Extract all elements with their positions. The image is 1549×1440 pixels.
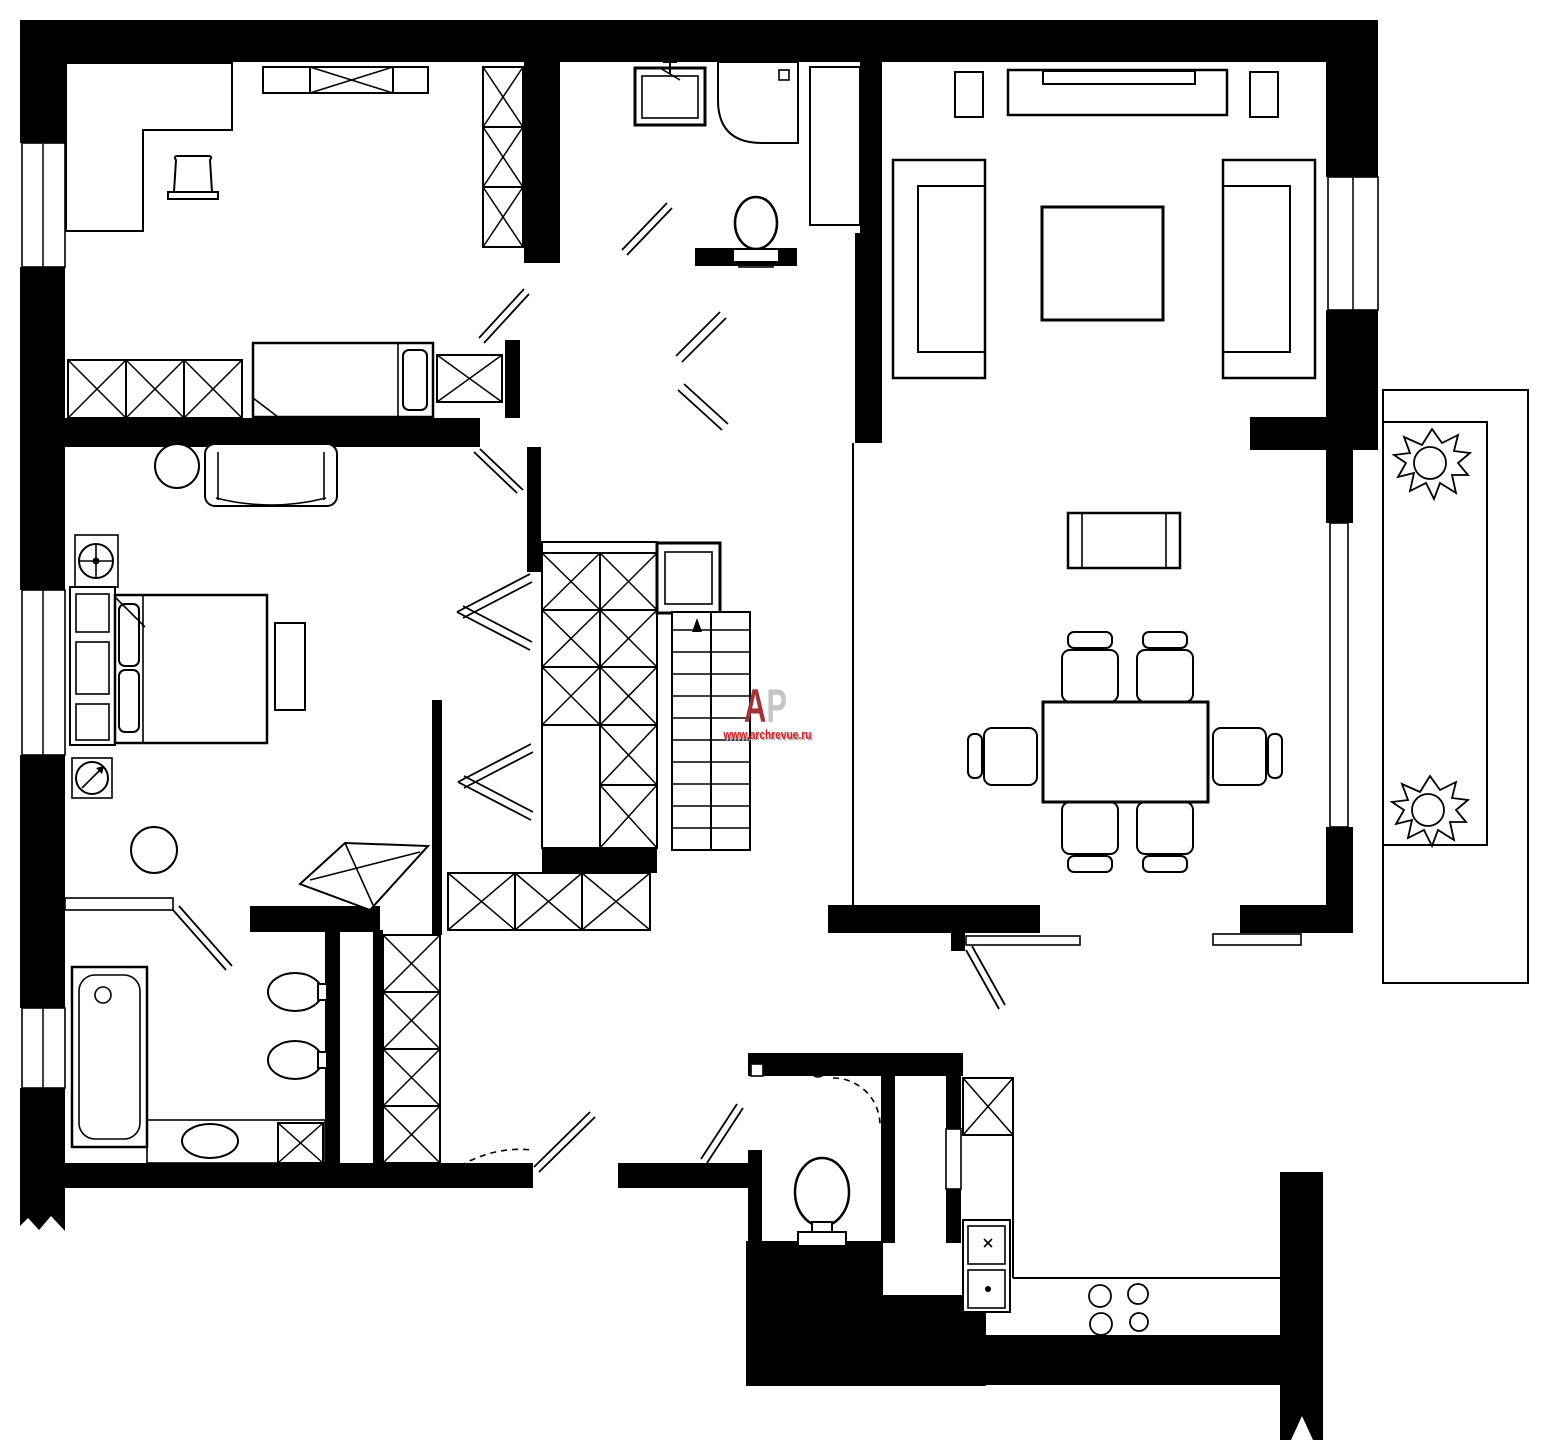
wall-right-dining bbox=[1326, 450, 1353, 523]
wardrobe-top-strip bbox=[542, 542, 657, 553]
single-bed bbox=[253, 343, 433, 417]
wall-bedroom1-east bbox=[524, 62, 560, 263]
wall-wc-east bbox=[881, 1053, 895, 1243]
low-wardrobe bbox=[68, 360, 242, 418]
dining-chair bbox=[1213, 728, 1282, 785]
toilet-icon bbox=[733, 197, 779, 267]
dining-chair bbox=[968, 728, 1037, 785]
wall-masterbath-east bbox=[325, 923, 340, 1167]
headboard-unit bbox=[70, 587, 115, 745]
wardrobe-plain-cell bbox=[542, 725, 600, 848]
wall-living-west bbox=[855, 233, 882, 443]
door-jamb bbox=[751, 1064, 763, 1076]
wall-dining-south bbox=[1240, 905, 1353, 933]
window bbox=[1328, 177, 1378, 310]
hall-wardrobe bbox=[542, 542, 657, 848]
dining-chair bbox=[1062, 802, 1118, 872]
door-jamb bbox=[946, 1129, 961, 1189]
wall-kitchen-east-broken-end bbox=[1280, 1172, 1323, 1440]
wall-right-top bbox=[1326, 56, 1378, 177]
loveseat bbox=[205, 444, 337, 506]
window-balcony-door bbox=[1330, 523, 1348, 827]
tv bbox=[1043, 71, 1195, 84]
wall-south bbox=[618, 1163, 748, 1188]
round-side-table bbox=[155, 444, 199, 488]
wall-closet-west bbox=[432, 700, 442, 935]
speaker-right bbox=[1250, 72, 1278, 117]
sofa-right bbox=[1223, 160, 1315, 378]
bathtub bbox=[72, 967, 147, 1147]
wall-bedroom1-south bbox=[20, 418, 480, 447]
wardrobe-base-wall bbox=[542, 848, 657, 873]
bench bbox=[275, 623, 305, 710]
wall-dining-south bbox=[828, 905, 1040, 933]
tall-wardrobe bbox=[483, 67, 523, 247]
window bbox=[22, 590, 65, 755]
tall-wardrobe bbox=[383, 935, 440, 1163]
wall-right bbox=[1326, 310, 1378, 450]
wall-left-broken-end bbox=[20, 1088, 65, 1231]
wall-right bbox=[1250, 417, 1326, 450]
dining-chair bbox=[1137, 632, 1193, 702]
window bbox=[22, 1008, 65, 1088]
toilet-icon bbox=[795, 1158, 849, 1246]
stool bbox=[131, 827, 177, 873]
wall-left bbox=[20, 56, 65, 143]
wall-top bbox=[20, 20, 1378, 62]
wall-kitchen-west bbox=[946, 1189, 961, 1243]
window bbox=[22, 143, 65, 267]
door-sill bbox=[966, 936, 1080, 945]
dining-chair bbox=[1137, 802, 1193, 872]
wall-masterbath-north bbox=[65, 898, 173, 910]
double-sink bbox=[963, 1220, 1010, 1312]
wall-pillar bbox=[505, 340, 520, 418]
wall-bath-east bbox=[860, 62, 882, 233]
speaker-left bbox=[955, 72, 983, 117]
wall-entry bbox=[748, 1150, 762, 1242]
wall-cabinet bbox=[263, 67, 428, 93]
watermark-logo: AP bbox=[744, 679, 787, 732]
wall-left bbox=[20, 755, 65, 1008]
dining-chair bbox=[1062, 632, 1118, 702]
wall-entry-block bbox=[746, 1241, 883, 1386]
wall-wc-north bbox=[748, 1053, 963, 1076]
wall-kitchen-west bbox=[946, 1053, 961, 1129]
door-post bbox=[951, 933, 965, 951]
wall-masterbath-north bbox=[250, 906, 380, 932]
duct-shaft bbox=[810, 67, 860, 225]
wall-closet-east bbox=[527, 447, 541, 572]
door-sill bbox=[1213, 934, 1301, 945]
desk-chair bbox=[168, 156, 218, 199]
wall-kitchen-south bbox=[963, 1335, 1280, 1385]
sideboard bbox=[1068, 513, 1180, 568]
double-bed bbox=[115, 595, 267, 743]
watermark-url: www.archrevue.ru bbox=[723, 728, 812, 742]
wall-south bbox=[65, 1163, 533, 1188]
floor-plan: AP www.archrevue.ru www.archrevue.ru bbox=[0, 0, 1549, 1440]
sofa-left bbox=[893, 160, 985, 378]
wall-shaft bbox=[373, 930, 383, 1167]
hall-lower-cabinets bbox=[448, 873, 650, 930]
